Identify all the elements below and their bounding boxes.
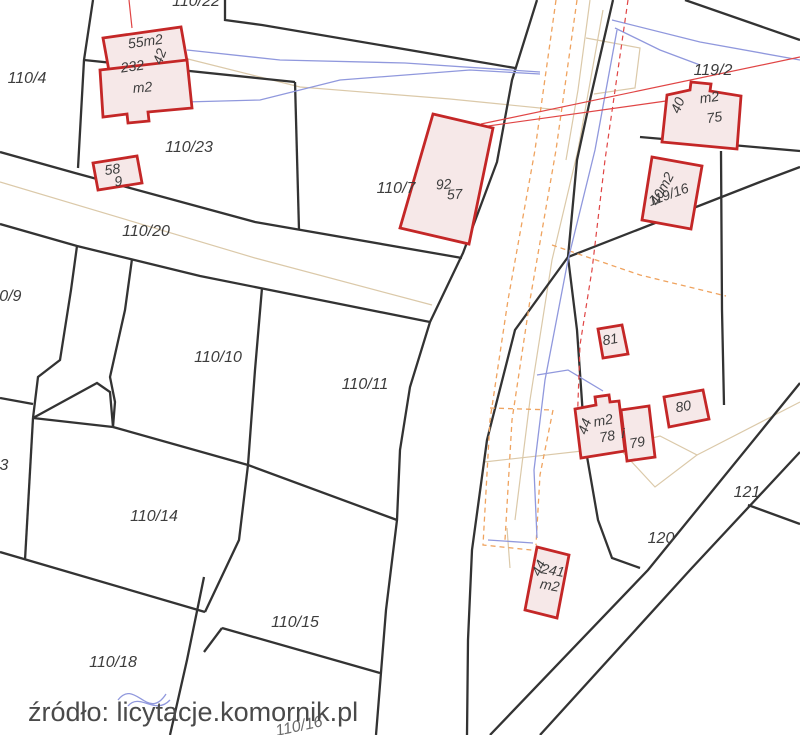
blue-utility-line <box>185 70 540 102</box>
parcel-line <box>721 151 724 405</box>
building-label: 81 <box>601 330 619 348</box>
building-labels: 55m2 42 232 m2 58 9 92 57 40 m2 75 40m2 … <box>103 31 723 595</box>
parcel-label: 3 <box>0 457 9 474</box>
red-line <box>481 57 800 124</box>
parcel-label: 110/18 <box>89 654 137 671</box>
parcel-label: 110/9 <box>0 288 22 305</box>
parcel-label: 110/11 <box>342 376 389 393</box>
parcel-label: 110/15 <box>271 614 319 631</box>
building-label: 75 <box>705 108 723 126</box>
road-line-southeast <box>540 452 800 735</box>
orange-utility-line <box>490 408 553 410</box>
building-label: 79 <box>628 433 646 451</box>
parcel-line <box>295 82 299 230</box>
parcel-line <box>685 0 800 40</box>
parcel-label: 119/2 <box>694 62 733 79</box>
blue-utility-line <box>187 50 540 72</box>
blue-utility-line <box>488 540 533 543</box>
parcel-label: 110/22 <box>172 0 220 10</box>
parcel-line <box>204 628 222 652</box>
parcel-line <box>225 0 515 68</box>
cadastral-map-image: 55m2 42 232 m2 58 9 92 57 40 m2 75 40m2 … <box>0 0 800 735</box>
building-label: m2 <box>539 576 561 595</box>
parcel-line <box>113 427 248 465</box>
parcel-line <box>110 259 132 427</box>
parcel-line <box>78 0 93 168</box>
faint-line <box>566 0 590 160</box>
blue-utility-line <box>615 28 700 65</box>
parcel-line <box>222 628 380 673</box>
parcel-line <box>0 224 430 322</box>
building-label: m2 <box>132 78 153 96</box>
parcel-label: 110/4 <box>8 70 47 87</box>
source-caption: źródło: licytacje.komornik.pl <box>28 697 358 727</box>
cadastral-map-screenshot: 55m2 42 232 m2 58 9 92 57 40 m2 75 40m2 … <box>0 0 800 735</box>
parcel-line <box>0 152 462 258</box>
parcel-line <box>205 465 248 612</box>
building-label: 78 <box>598 427 616 445</box>
parcel-label: 120 <box>648 530 675 547</box>
blue-utility-line <box>537 370 603 391</box>
parcel-label: 110/20 <box>122 223 170 240</box>
parcel-label: 110/14 <box>130 508 178 525</box>
red-dashed-line <box>577 0 628 430</box>
building-label: m2 <box>699 88 721 107</box>
building-label: 57 <box>446 185 464 202</box>
red-line <box>129 0 132 28</box>
parcel-line <box>0 552 205 612</box>
parcel-line <box>248 288 262 465</box>
parcel-line <box>33 246 77 418</box>
parcel-line <box>33 418 113 427</box>
building-label: 232 <box>119 56 146 75</box>
parcel-line <box>25 418 33 560</box>
parcel-line <box>248 465 397 520</box>
parcel-label: 121 <box>734 484 761 501</box>
parcel-label: 110/10 <box>194 349 242 366</box>
parcel-line <box>748 505 800 524</box>
parcel-label: 110/7 <box>377 180 417 197</box>
road-line-west <box>376 0 537 735</box>
building-label: 80 <box>674 397 692 415</box>
parcel-line <box>0 398 33 404</box>
parcel-label: 110/23 <box>165 139 213 156</box>
buildings <box>93 27 741 618</box>
